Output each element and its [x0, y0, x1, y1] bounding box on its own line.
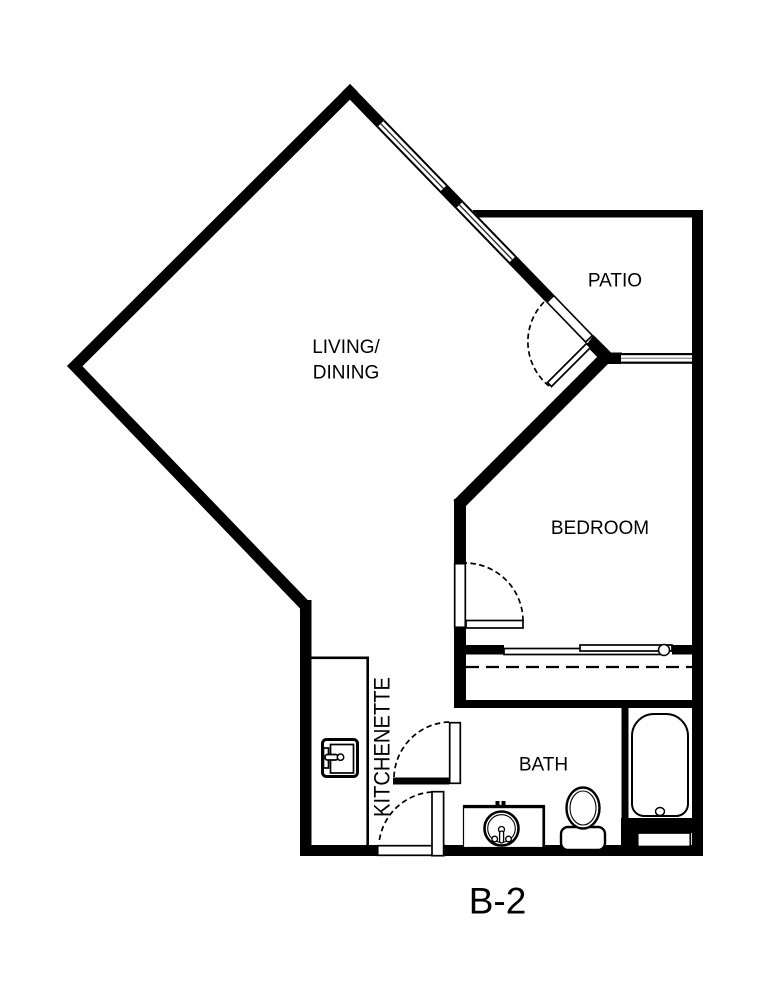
svg-text:DINING: DINING: [313, 362, 380, 383]
svg-text:LIVING/: LIVING/: [312, 337, 380, 358]
svg-text:BATH: BATH: [519, 754, 568, 775]
svg-text:KITCHENETTE: KITCHENETTE: [370, 677, 395, 817]
svg-text:B-2: B-2: [469, 880, 527, 921]
svg-text:PATIO: PATIO: [588, 270, 642, 291]
svg-text:BEDROOM: BEDROOM: [551, 518, 649, 539]
